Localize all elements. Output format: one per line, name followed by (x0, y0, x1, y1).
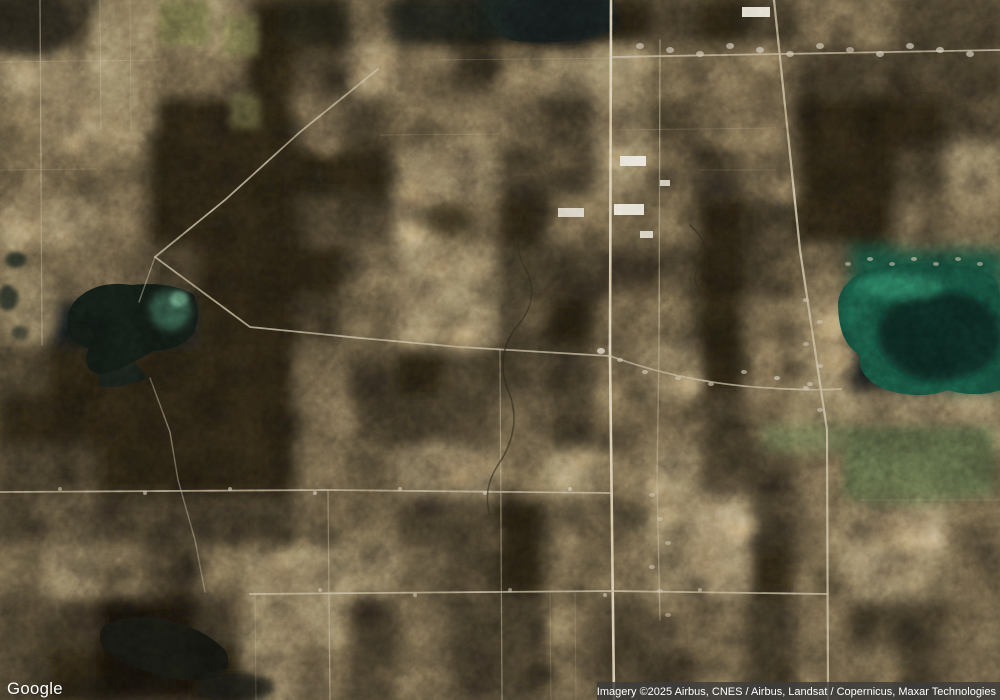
svg-text:Google: Google (7, 679, 63, 698)
svg-text:Imagery ©2025 Airbus, CNES / A: Imagery ©2025 Airbus, CNES / Airbus, Lan… (597, 686, 997, 698)
